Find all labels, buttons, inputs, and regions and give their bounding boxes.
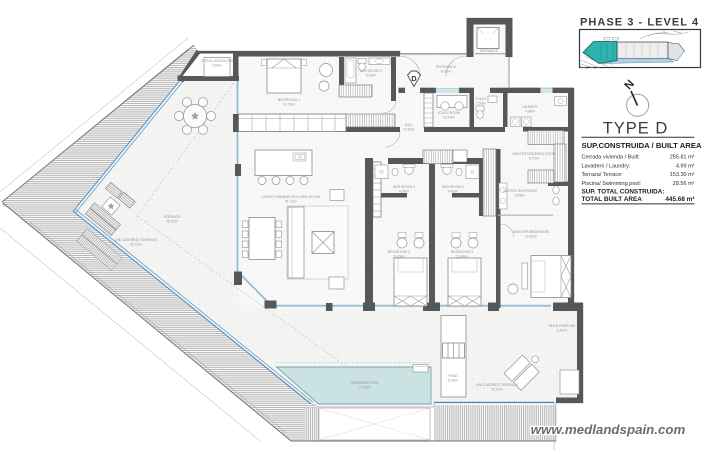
svg-text:UNCOVERED TERRACE: UNCOVERED TERRACE <box>115 238 158 242</box>
svg-text:8.77m²: 8.77m² <box>529 157 540 161</box>
svg-text:255.81 m²: 255.81 m² <box>670 155 695 161</box>
svg-text:10.24m²: 10.24m² <box>443 116 456 120</box>
svg-text:BATHROOM 4: BATHROOM 4 <box>442 185 464 189</box>
svg-text:SUP. TOTAL CONSTRUIDA:: SUP. TOTAL CONSTRUIDA: <box>582 189 665 196</box>
svg-text:56.73m²: 56.73m² <box>130 243 143 247</box>
svg-text:TYPE D: TYPE D <box>603 120 669 138</box>
svg-text:INSTALLATIONS RM: INSTALLATIONS RM <box>201 59 232 63</box>
svg-text:TERRACE: TERRACE <box>163 215 181 219</box>
svg-text:Piscina/ Swimming pool:: Piscina/ Swimming pool: <box>582 181 642 187</box>
svg-text:445.68 m²: 445.68 m² <box>665 196 694 203</box>
svg-text:4.43m²: 4.43m² <box>448 190 459 194</box>
svg-text:4.34m²: 4.34m² <box>399 190 410 194</box>
svg-text:4.99m²: 4.99m² <box>525 110 536 114</box>
svg-text:LIVING DINNING KITCHEN ROOM: LIVING DINNING KITCHEN ROOM <box>262 195 320 199</box>
svg-text:5.14m²: 5.14m² <box>366 74 377 78</box>
svg-text:2.50m²: 2.50m² <box>476 102 487 106</box>
svg-text:D: D <box>411 74 416 83</box>
svg-text:PHASE 3 - LEVEL 4: PHASE 3 - LEVEL 4 <box>580 17 699 29</box>
svg-text:N: N <box>623 78 637 92</box>
svg-text:STUDY ROOM: STUDY ROOM <box>438 111 461 115</box>
svg-text:5.63m²: 5.63m² <box>515 194 526 198</box>
svg-text:6.41m²: 6.41m² <box>557 329 568 333</box>
svg-text:SUP.CONSTRUIDA / BUILT AREA: SUP.CONSTRUIDA / BUILT AREA <box>582 141 702 150</box>
svg-text:BEDROOM 1: BEDROOM 1 <box>278 98 300 102</box>
svg-text:MULTI PURPOSE: MULTI PURPOSE <box>549 324 576 328</box>
svg-text:TOILET: TOILET <box>475 97 486 101</box>
svg-text:BEDROOM 3: BEDROOM 3 <box>451 250 473 254</box>
svg-text:MASTER BEDROOM: MASTER BEDROOM <box>513 230 548 234</box>
svg-text:10.32m²: 10.32m² <box>403 128 416 132</box>
svg-text:UNCOVERED TERRACE: UNCOVERED TERRACE <box>476 383 519 387</box>
svg-text:BATHROOM 2: BATHROOM 2 <box>360 69 382 73</box>
svg-text:6.23m²: 6.23m² <box>448 379 459 383</box>
svg-text:76.15m²: 76.15m² <box>166 220 179 224</box>
svg-text:153.30 m²: 153.30 m² <box>670 172 695 178</box>
svg-text:HALL: HALL <box>405 123 413 127</box>
svg-text:ENTRANCE: ENTRANCE <box>436 65 457 69</box>
svg-text:ENTRANCE: ENTRANCE <box>480 49 499 53</box>
svg-text:www.medlandspain.com: www.medlandspain.com <box>531 422 686 437</box>
svg-text:Cerrada vivienda / Built:: Cerrada vivienda / Built: <box>582 155 641 161</box>
svg-text:POND: POND <box>448 374 458 378</box>
svg-text:MASTER BATHROOM: MASTER BATHROOM <box>503 189 537 193</box>
svg-text:Lavadero / Laundry:: Lavadero / Laundry: <box>582 163 631 169</box>
svg-text:LAUNDRY: LAUNDRY <box>522 105 538 109</box>
svg-text:MASTER DRESSING ROOM: MASTER DRESSING ROOM <box>512 152 555 156</box>
svg-text:72.75m²: 72.75m² <box>491 388 504 392</box>
svg-text:28.56 m²: 28.56 m² <box>673 181 695 187</box>
svg-text:SWIMMING POOL: SWIMMING POOL <box>351 381 379 385</box>
svg-text:BATHROOM 3: BATHROOM 3 <box>393 185 415 189</box>
svg-text:11.64m²: 11.64m² <box>456 255 469 259</box>
svg-text:14.73m²: 14.73m² <box>283 103 296 107</box>
svg-text:BEDROOM 2: BEDROOM 2 <box>388 250 410 254</box>
svg-text:2.59m²: 2.59m² <box>212 64 223 68</box>
svg-text:9.62m²: 9.62m² <box>441 70 452 74</box>
svg-text:4.99 m²: 4.99 m² <box>676 163 695 169</box>
svg-text:TOTAL BUILT AREA: TOTAL BUILT AREA <box>582 196 643 203</box>
svg-text:11.63m²: 11.63m² <box>393 255 406 259</box>
svg-text:51.71m²: 51.71m² <box>285 200 298 204</box>
svg-text:19.26m²: 19.26m² <box>525 235 538 239</box>
svg-text:17.03m²: 17.03m² <box>359 386 372 390</box>
svg-text:Terraza/ Terrace:: Terraza/ Terrace: <box>582 172 624 178</box>
